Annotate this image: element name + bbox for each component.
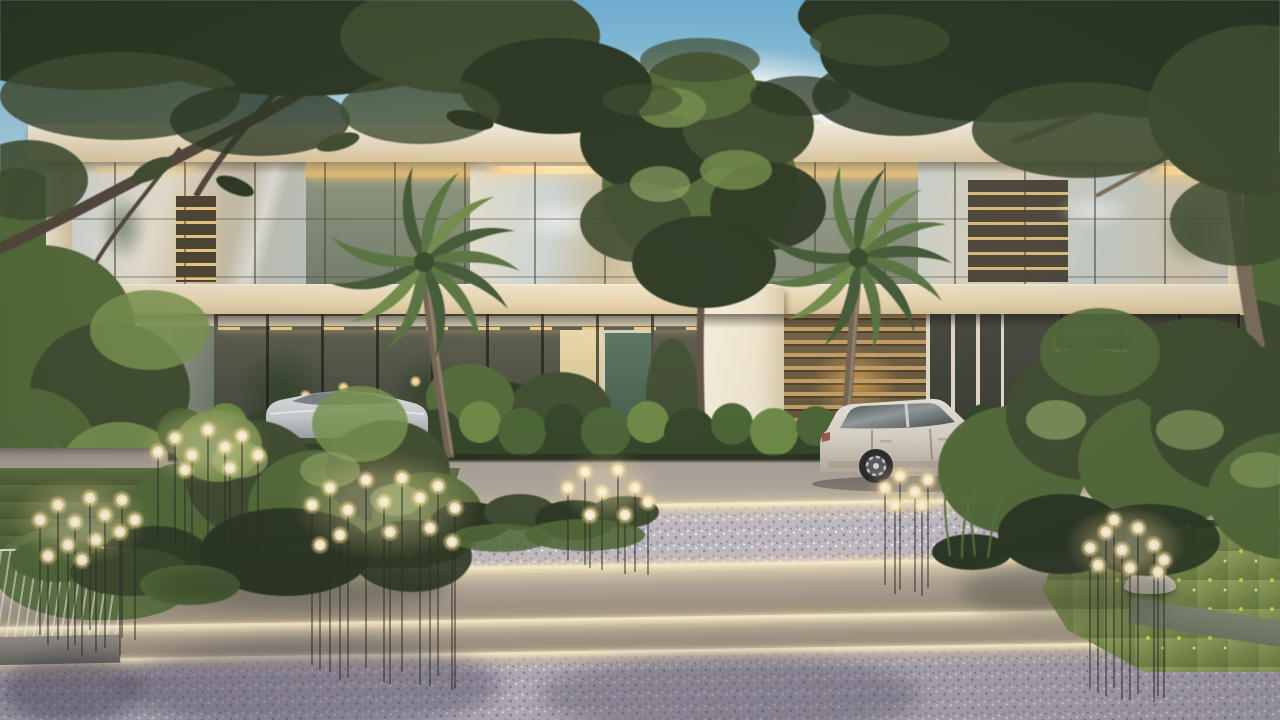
- firefly-lights: [0, 0, 1280, 720]
- architectural-rendering: [0, 0, 1280, 720]
